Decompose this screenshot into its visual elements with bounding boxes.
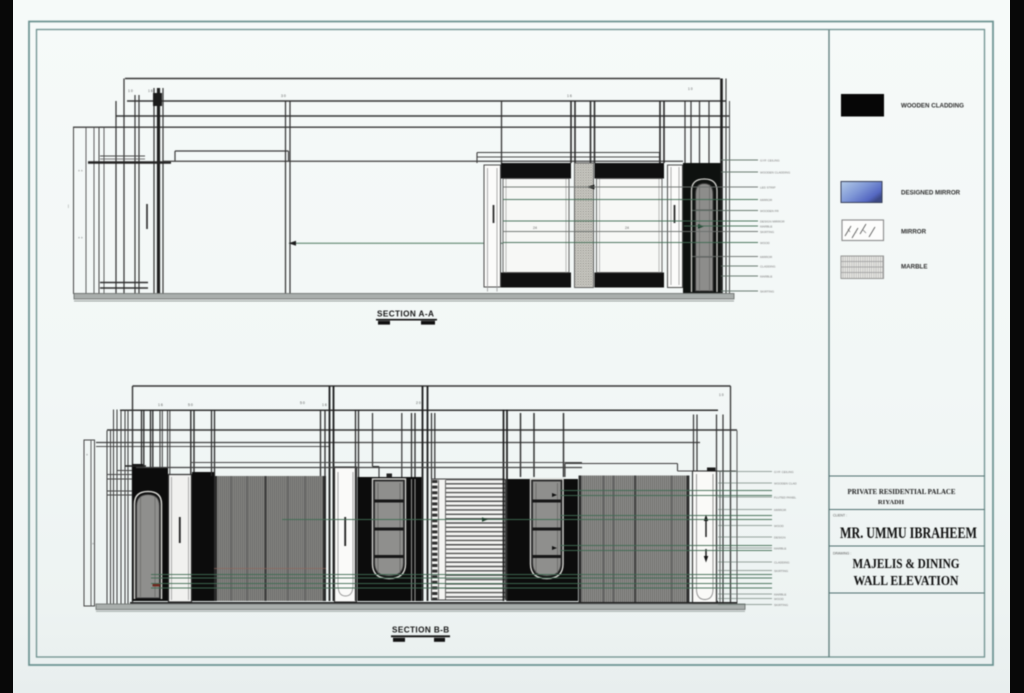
svg-text:PRIVATE RESIDENTIAL PALACE: PRIVATE RESIDENTIAL PALACE	[848, 487, 956, 496]
svg-text:SKIRTING: SKIRTING	[774, 569, 789, 573]
svg-text:WOODEN FR: WOODEN FR	[760, 209, 779, 213]
svg-text:MIRROR: MIRROR	[760, 255, 773, 259]
svg-text:SKIRTING: SKIRTING	[760, 289, 775, 293]
svg-text:DESIGN: DESIGN	[774, 535, 786, 539]
svg-text:MARBLE: MARBLE	[774, 546, 786, 550]
svg-text:3 0: 3 0	[281, 94, 286, 98]
svg-text:MARBLE: MARBLE	[760, 274, 772, 278]
svg-text:DRAWING :: DRAWING :	[833, 552, 851, 556]
svg-text:WOOD: WOOD	[774, 597, 784, 601]
svg-text:SKIRTING: SKIRTING	[774, 603, 789, 607]
svg-text:MIRROR: MIRROR	[774, 508, 787, 512]
svg-text:+ +: + +	[78, 236, 83, 240]
svg-text:.: .	[856, 229, 857, 234]
svg-text:RIYADH: RIYADH	[878, 499, 905, 506]
svg-text:MIRROR: MIRROR	[760, 198, 773, 202]
svg-text:1 6: 1 6	[158, 403, 163, 407]
svg-text:DESIGN MIRROR: DESIGN MIRROR	[760, 219, 785, 223]
svg-text:WOODEN CLADDING: WOODEN CLADDING	[760, 170, 791, 174]
svg-text:|: |	[68, 204, 69, 208]
svg-text:MR. UMMU IBRAHEEM: MR. UMMU IBRAHEEM	[840, 525, 977, 542]
svg-text:24: 24	[625, 226, 629, 230]
svg-text:DESIGNED MIRROR: DESIGNED MIRROR	[901, 190, 961, 197]
svg-text:LED STRIP: LED STRIP	[760, 185, 776, 189]
svg-text:1 6: 1 6	[567, 94, 572, 98]
svg-text:1 0: 1 0	[719, 393, 724, 397]
svg-text:SKIRTING: SKIRTING	[760, 230, 775, 234]
svg-text:CLADDING: CLADDING	[774, 560, 790, 564]
svg-text:CLIENT :: CLIENT :	[833, 514, 847, 518]
svg-text:1 6: 1 6	[148, 89, 153, 93]
svg-text:MIRROR: MIRROR	[901, 229, 927, 236]
svg-text:MARBLE: MARBLE	[774, 592, 786, 596]
svg-text:WOOD: WOOD	[760, 241, 770, 245]
svg-text:+ +: + +	[78, 169, 83, 173]
svg-text:5 0: 5 0	[300, 401, 305, 405]
svg-text:WOODEN CLAD: WOODEN CLAD	[774, 481, 798, 485]
svg-text:24: 24	[533, 226, 537, 230]
svg-text:SECTION A-A: SECTION A-A	[377, 310, 434, 319]
svg-text:WALL ELEVATION: WALL ELEVATION	[854, 573, 959, 588]
svg-text:MARBLE: MARBLE	[760, 224, 772, 228]
svg-text:+: +	[86, 453, 88, 457]
svg-text:5 0: 5 0	[188, 403, 193, 407]
svg-text:2 0: 2 0	[416, 401, 421, 405]
svg-text:FLUTED PANEL: FLUTED PANEL	[774, 495, 796, 499]
svg-text:MAJELIS & DINING: MAJELIS & DINING	[853, 556, 960, 571]
svg-text:CLADDING: CLADDING	[760, 264, 776, 268]
svg-text:1 6: 1 6	[322, 403, 327, 407]
svg-text:GYP. CEILING: GYP. CEILING	[760, 158, 780, 162]
svg-text:SECTION B-B: SECTION B-B	[392, 626, 450, 635]
svg-text:WOOD: WOOD	[774, 524, 784, 528]
svg-text:WOODEN CLADDING: WOODEN CLADDING	[901, 103, 964, 110]
svg-text:MARBLE: MARBLE	[901, 264, 927, 271]
svg-text:1 0: 1 0	[128, 89, 133, 93]
svg-text:1 0: 1 0	[688, 87, 693, 91]
svg-text:+: +	[92, 542, 94, 546]
svg-text:GYP. CEILING: GYP. CEILING	[774, 470, 794, 474]
